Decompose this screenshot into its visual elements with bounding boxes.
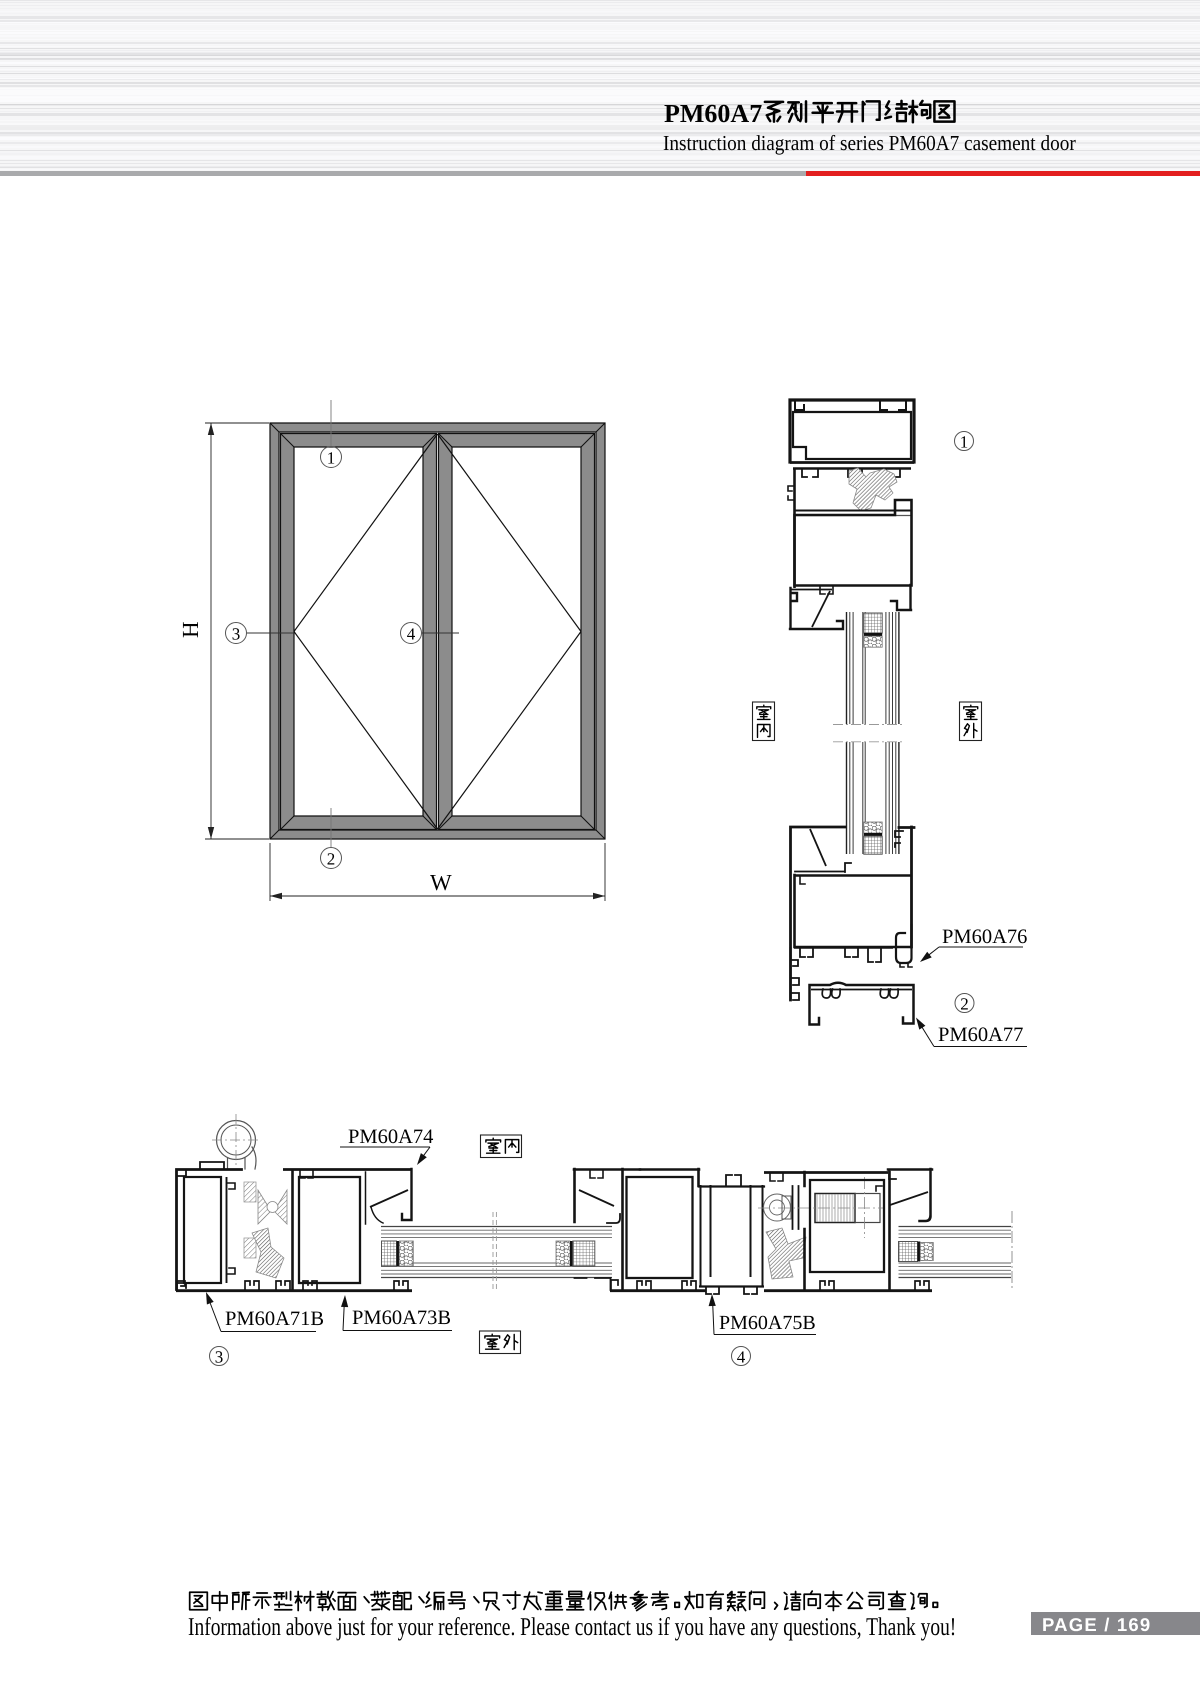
svg-text:PM60A74: PM60A74	[348, 1126, 433, 1148]
svg-text:PAGE / 169: PAGE / 169	[1042, 1614, 1151, 1635]
svg-text:PM60A76: PM60A76	[942, 926, 1027, 948]
svg-text:1: 1	[327, 449, 336, 468]
svg-text:3: 3	[215, 1348, 224, 1367]
svg-text:H: H	[178, 621, 203, 638]
svg-text:PM60A71B: PM60A71B	[225, 1308, 324, 1330]
svg-text:Information above just for you: Information above just for your referenc…	[188, 1612, 956, 1641]
svg-text:3: 3	[232, 625, 241, 644]
svg-text:PM60A7: PM60A7	[664, 99, 762, 128]
svg-text:2: 2	[327, 850, 336, 869]
svg-text:4: 4	[407, 625, 416, 644]
svg-text:PM60A75B: PM60A75B	[719, 1312, 816, 1334]
svg-text:PM60A73B: PM60A73B	[352, 1307, 451, 1329]
svg-text:W: W	[430, 870, 452, 895]
svg-text:Instruction diagram of series: Instruction diagram of series PM60A7 cas…	[663, 131, 1076, 155]
svg-text:2: 2	[960, 995, 969, 1014]
svg-text:1: 1	[960, 433, 969, 452]
svg-text:4: 4	[737, 1348, 746, 1367]
svg-text:PM60A77: PM60A77	[938, 1024, 1023, 1046]
